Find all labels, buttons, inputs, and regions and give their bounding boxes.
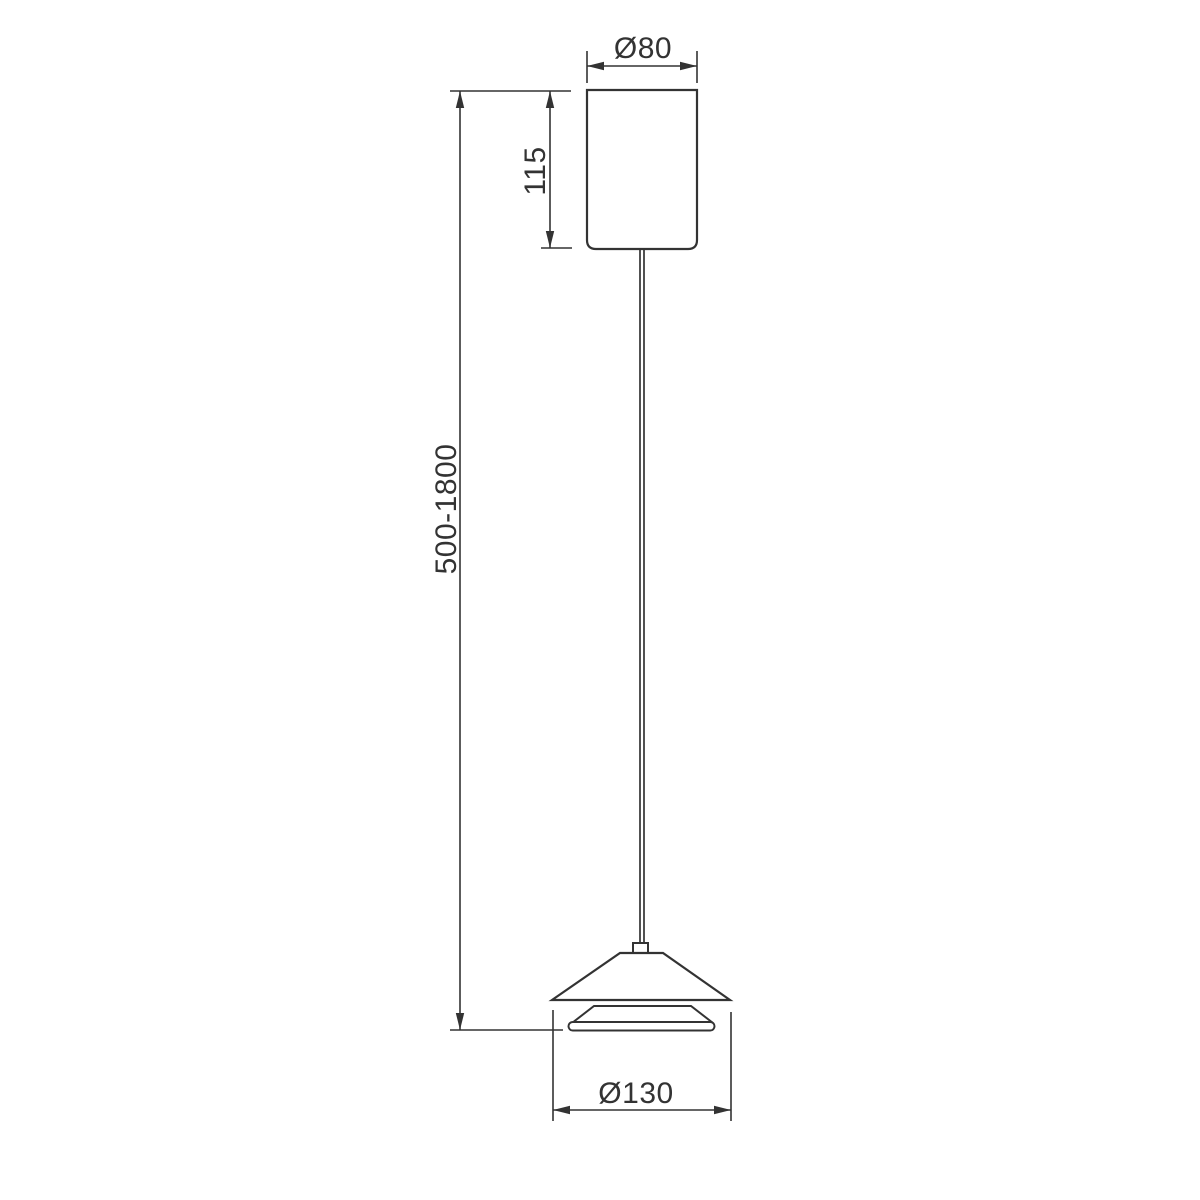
lamp-outline <box>552 90 730 1031</box>
shade-diffuser-ring <box>569 1022 715 1031</box>
arrowhead-left-icon <box>587 62 604 70</box>
arrowhead-down-icon <box>546 231 554 248</box>
dim-suspension-length: 500-1800 <box>430 91 563 1030</box>
shade-outer-cone <box>552 953 730 1000</box>
dim-label-canopy-diameter: Ø80 <box>614 32 672 65</box>
dim-label-shade-diameter: Ø130 <box>598 1077 673 1110</box>
dim-label-suspension-length: 500-1800 <box>430 444 463 575</box>
dim-canopy-height: 115 <box>450 91 572 248</box>
dim-label-canopy-height: 115 <box>519 146 552 195</box>
arrowhead-right-icon <box>680 62 697 70</box>
arrowhead-up-icon <box>456 91 464 108</box>
arrowhead-down-icon <box>456 1013 464 1030</box>
suspension-cable <box>640 249 644 944</box>
dim-canopy-diameter: Ø80 <box>587 32 697 83</box>
drawing-canvas: Ø80 115 500-1800 Ø130 <box>0 0 1200 1200</box>
pendant-lamp-dimension-drawing: Ø80 115 500-1800 Ø130 <box>0 0 1200 1200</box>
arrowhead-left-icon <box>553 1106 570 1114</box>
arrowhead-up-icon <box>546 91 554 108</box>
shade-inner-cone <box>572 1006 713 1023</box>
ceiling-canopy <box>587 90 697 249</box>
arrowhead-right-icon <box>714 1106 731 1114</box>
